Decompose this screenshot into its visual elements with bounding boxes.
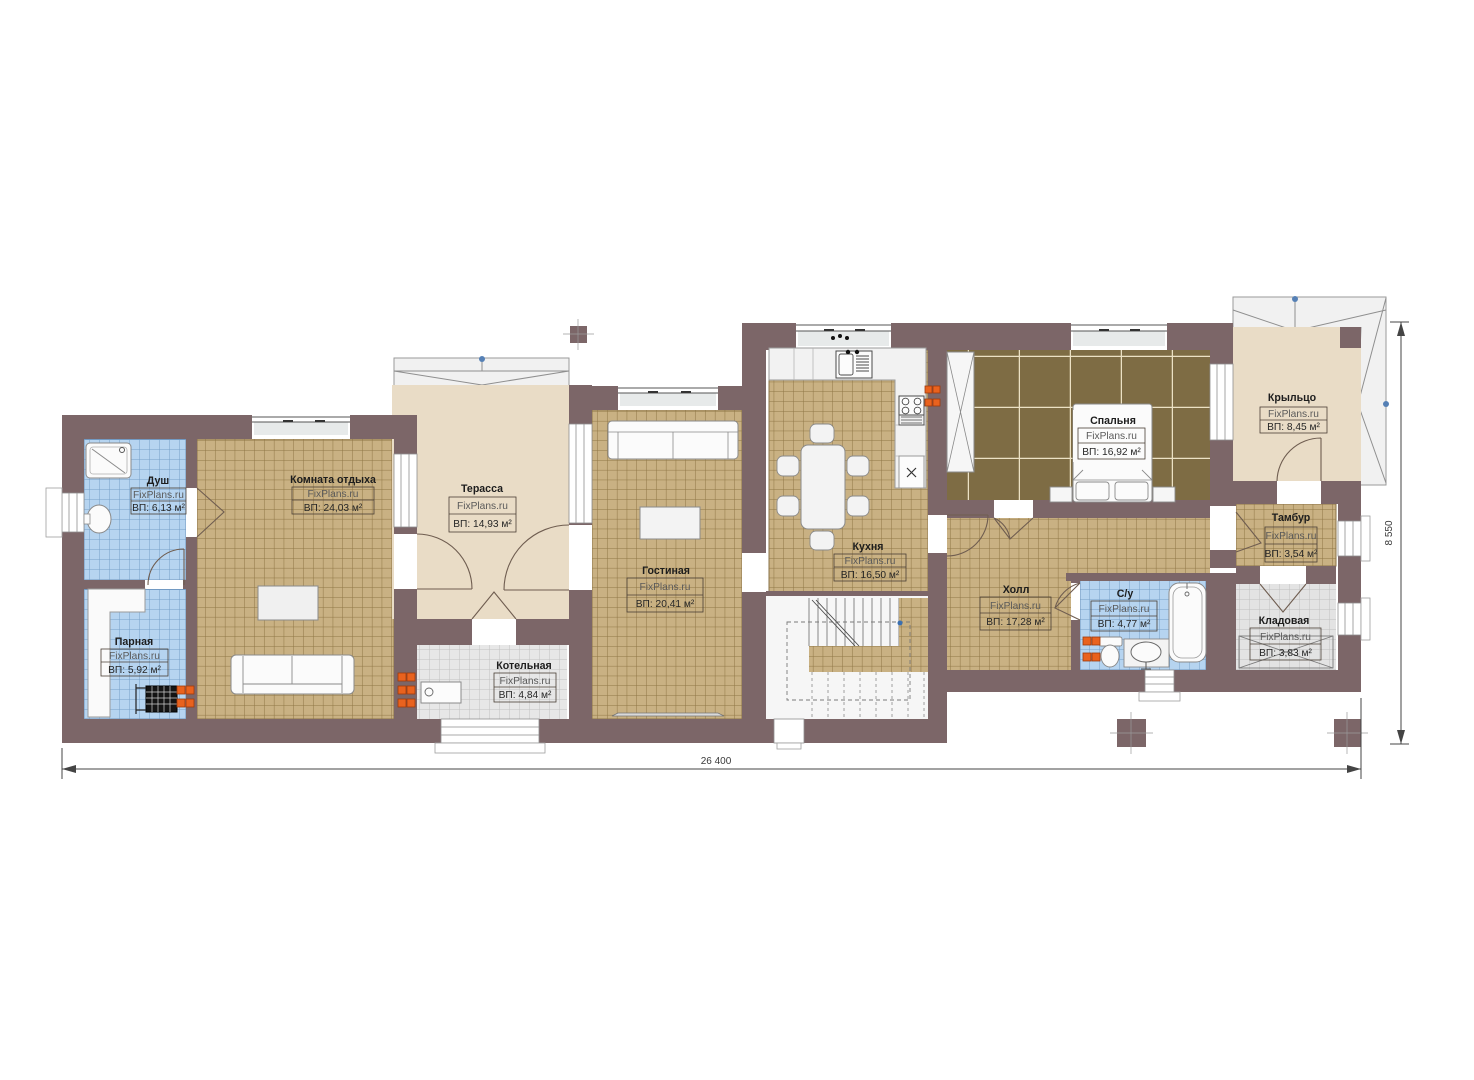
- svg-text:Кладовая: Кладовая: [1259, 615, 1310, 627]
- svg-text:ВП: 16,92 м²: ВП: 16,92 м²: [1082, 447, 1141, 458]
- svg-text:Крыльцо: Крыльцо: [1268, 392, 1317, 404]
- svg-text:ВП: 3,83 м²: ВП: 3,83 м²: [1259, 648, 1312, 659]
- svg-text:Терасса: Терасса: [461, 483, 503, 495]
- svg-text:FixPlans.ru: FixPlans.ru: [1260, 632, 1311, 643]
- svg-text:Комната отдыха: Комната отдыха: [290, 474, 376, 486]
- svg-text:FixPlans.ru: FixPlans.ru: [1086, 431, 1137, 442]
- svg-text:ВП: 5,92 м²: ВП: 5,92 м²: [108, 665, 161, 676]
- svg-text:ВП: 24,03 м²: ВП: 24,03 м²: [304, 503, 363, 514]
- svg-text:FixPlans.ru: FixPlans.ru: [500, 676, 551, 687]
- svg-text:ВП: 17,28 м²: ВП: 17,28 м²: [986, 617, 1045, 628]
- svg-text:ВП: 4,77 м²: ВП: 4,77 м²: [1098, 619, 1151, 630]
- svg-text:FixPlans.ru: FixPlans.ru: [109, 651, 160, 662]
- svg-text:26 400: 26 400: [701, 756, 732, 767]
- svg-text:Гостиная: Гостиная: [642, 565, 690, 577]
- svg-text:Холл: Холл: [1003, 584, 1030, 596]
- svg-text:FixPlans.ru: FixPlans.ru: [640, 582, 691, 593]
- svg-text:Душ: Душ: [147, 475, 170, 487]
- svg-text:С/у: С/у: [1117, 588, 1134, 600]
- svg-text:Кухня: Кухня: [853, 541, 884, 553]
- svg-text:FixPlans.ru: FixPlans.ru: [1268, 409, 1319, 420]
- svg-text:8 550: 8 550: [1384, 520, 1395, 545]
- svg-text:FixPlans.ru: FixPlans.ru: [1266, 531, 1317, 542]
- svg-text:ВП: 6,13 м²: ВП: 6,13 м²: [132, 503, 185, 514]
- svg-text:ВП: 3,54 м²: ВП: 3,54 м²: [1265, 549, 1318, 560]
- svg-text:ВП: 16,50 м²: ВП: 16,50 м²: [841, 570, 900, 581]
- svg-text:FixPlans.ru: FixPlans.ru: [990, 601, 1041, 612]
- svg-text:Спальня: Спальня: [1090, 415, 1136, 427]
- svg-text:ВП: 8,45 м²: ВП: 8,45 м²: [1267, 422, 1320, 433]
- svg-text:FixPlans.ru: FixPlans.ru: [457, 501, 508, 512]
- svg-text:ВП: 14,93 м²: ВП: 14,93 м²: [453, 519, 512, 530]
- svg-text:ВП: 20,41 м²: ВП: 20,41 м²: [636, 599, 695, 610]
- svg-text:FixPlans.ru: FixPlans.ru: [133, 490, 184, 501]
- svg-text:FixPlans.ru: FixPlans.ru: [845, 556, 896, 567]
- svg-text:ВП: 4,84 м²: ВП: 4,84 м²: [499, 690, 552, 701]
- svg-text:Котельная: Котельная: [496, 660, 551, 672]
- svg-text:FixPlans.ru: FixPlans.ru: [308, 489, 359, 500]
- svg-text:Тамбур: Тамбур: [1272, 512, 1311, 524]
- svg-text:Парная: Парная: [115, 636, 153, 648]
- svg-text:FixPlans.ru: FixPlans.ru: [1099, 604, 1150, 615]
